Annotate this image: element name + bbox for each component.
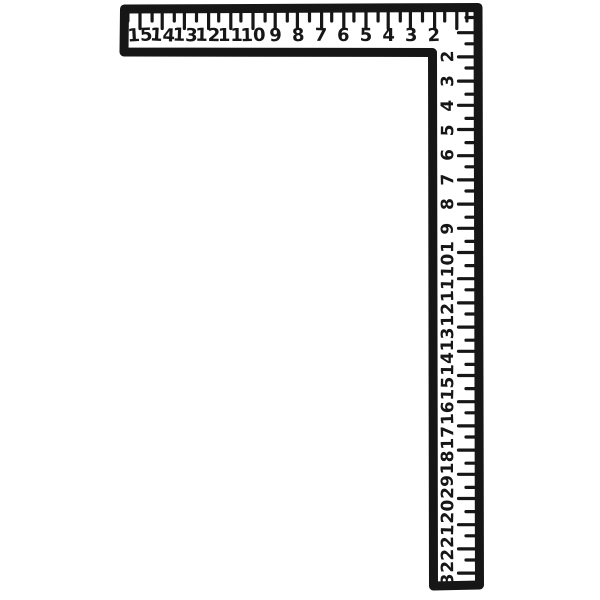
h-number-4: 4 — [382, 25, 395, 46]
v-number-digit: 1 — [438, 364, 458, 376]
v-number-digit: 2 — [438, 511, 458, 524]
v-number-20: 20 — [438, 487, 458, 512]
v-number-digit: 5 — [438, 124, 458, 136]
v-number-digit: 3 — [438, 75, 458, 87]
v-number-14: 14 — [438, 339, 458, 363]
v-number-digit: 2 — [438, 487, 458, 499]
v-number-digit: 1 — [438, 524, 458, 537]
v-number-17: 17 — [438, 413, 458, 438]
v-number-digit: 2 — [438, 536, 458, 549]
v-number-22: 22 — [438, 536, 458, 561]
v-number-digit: 8 — [438, 450, 458, 462]
v-number-21: 21 — [438, 511, 458, 536]
framing-square-drawing: 15141312111098765432 2345678910111213141… — [0, 0, 600, 600]
v-number-digit: 3 — [438, 573, 458, 585]
v-number-digit: 1 — [438, 241, 458, 253]
h-number-10: 10 — [240, 25, 265, 46]
v-number-digit: 0 — [438, 253, 458, 265]
v-number-digit: 9 — [438, 475, 458, 487]
v-number-digit: 7 — [438, 425, 458, 438]
v-number-digit: 1 — [438, 315, 458, 327]
v-number-13: 13 — [438, 315, 458, 340]
v-number-digit: 4 — [438, 352, 458, 364]
v-number-digit: 1 — [438, 278, 458, 291]
vertical-ruler-numbers: 234567891011121314151617181920212223 — [438, 50, 458, 585]
v-number-6: 6 — [438, 149, 458, 162]
v-number-digit: 3 — [438, 327, 458, 339]
v-number-10: 10 — [438, 241, 458, 266]
v-number-digit: 5 — [438, 377, 458, 389]
v-number-digit: 2 — [438, 561, 458, 573]
h-number-7: 7 — [314, 25, 328, 47]
v-number-digit: 8 — [438, 198, 458, 210]
v-number-digit: 1 — [438, 462, 458, 474]
v-number-12: 12 — [438, 290, 458, 315]
v-number-digit: 7 — [438, 173, 458, 186]
h-number-3: 3 — [405, 25, 418, 46]
v-number-digit: 0 — [438, 499, 458, 511]
v-number-digit: 6 — [438, 401, 458, 414]
v-number-16: 16 — [438, 388, 458, 413]
v-number-digit: 1 — [438, 339, 458, 351]
h-number-5: 5 — [360, 25, 373, 46]
v-number-7: 7 — [438, 173, 458, 186]
h-number-6: 6 — [337, 25, 350, 46]
v-number-23: 23 — [438, 561, 458, 586]
v-number-digit: 1 — [438, 438, 458, 450]
h-number-11: 11 — [218, 25, 243, 46]
v-number-3: 3 — [438, 75, 458, 87]
square-outline — [124, 8, 480, 587]
v-number-digit: 2 — [438, 50, 458, 63]
v-number-15: 15 — [438, 364, 458, 389]
v-number-digit: 4 — [438, 100, 458, 112]
v-number-digit: 9 — [438, 223, 458, 235]
v-number-19: 19 — [438, 462, 458, 486]
v-number-digit: 1 — [438, 290, 458, 303]
v-number-5: 5 — [438, 124, 458, 136]
v-number-digit: 1 — [438, 265, 458, 278]
v-number-digit: 2 — [438, 548, 458, 561]
h-number-9: 9 — [269, 25, 282, 46]
v-number-18: 18 — [438, 438, 458, 463]
v-number-digit: 6 — [438, 149, 458, 162]
v-number-4: 4 — [438, 100, 458, 112]
v-number-9: 9 — [438, 223, 458, 235]
page-background: 15141312111098765432 2345678910111213141… — [0, 0, 600, 600]
v-number-digit: 2 — [438, 302, 458, 315]
h-number-2: 2 — [427, 25, 440, 46]
v-number-digit: 1 — [438, 413, 458, 426]
v-number-8: 8 — [438, 198, 458, 210]
h-number-12: 12 — [195, 25, 220, 46]
v-number-2: 2 — [438, 50, 458, 63]
h-number-8: 8 — [291, 25, 305, 47]
v-number-digit: 1 — [438, 388, 458, 401]
v-number-11: 11 — [438, 265, 458, 290]
